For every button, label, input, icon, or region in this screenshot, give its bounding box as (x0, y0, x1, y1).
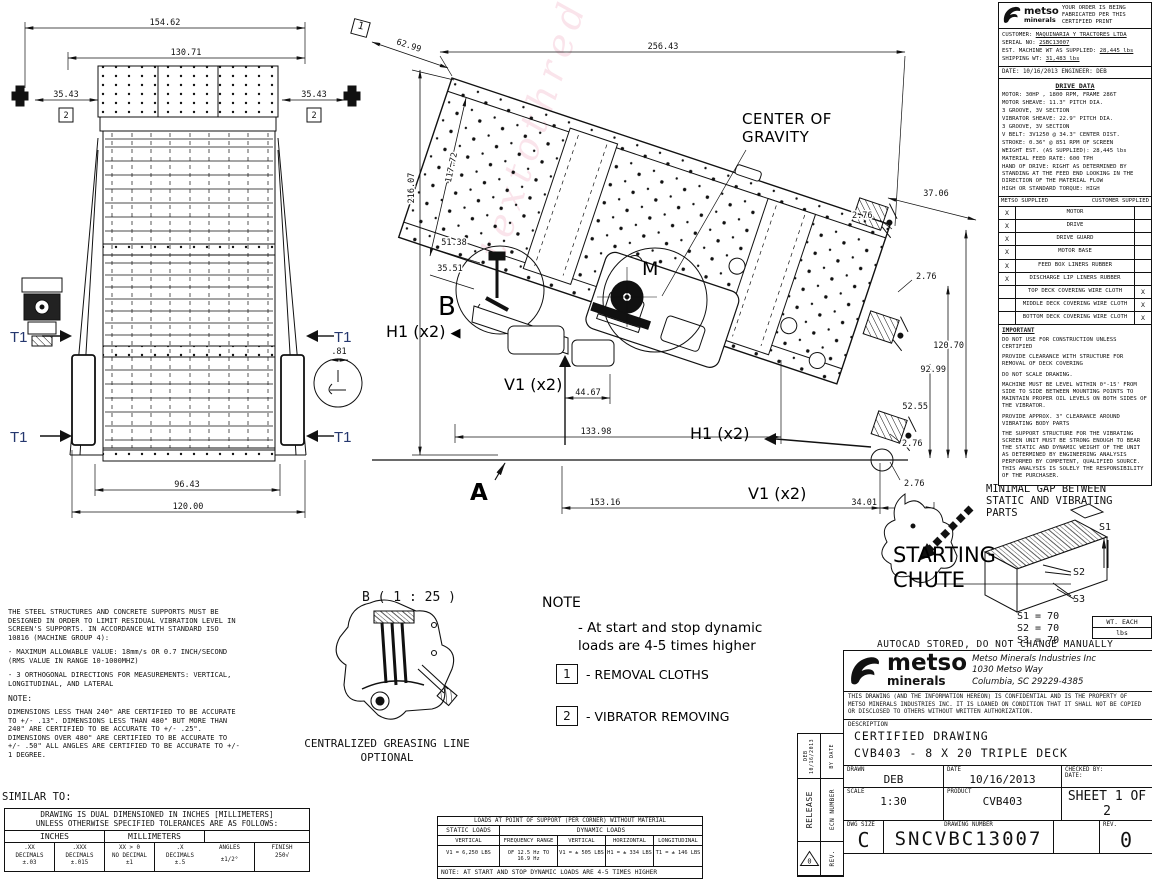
scale-value: 1:30 (847, 795, 940, 808)
ship-wt-value: 31,483 lbs (1046, 56, 1080, 62)
customer-cell (1135, 207, 1151, 219)
blank-cell (1054, 821, 1100, 853)
metso-cell: X (999, 233, 1015, 245)
tolerance-cell: .XX DECIMALS ±.03 (5, 843, 55, 871)
item-cell: FEED BOX LINERS RUBBER (1015, 260, 1135, 272)
important-paragraph: THE SUPPORT STRUCTURE FOR THE VIBRATING … (1002, 431, 1148, 480)
ship-wt-label: SHIPPING WT: (1002, 56, 1042, 62)
scale-row: SCALE 1:30 PRODUCT CVB403 SHEET 1 OF 2 (844, 788, 1152, 821)
logo-subtext: minerals (1024, 16, 1059, 24)
table-row: X DRIVE (999, 220, 1151, 233)
wt-each-label: WT. EACH (1093, 617, 1151, 627)
item-cell: MOTOR BASE (1015, 246, 1135, 258)
customer-cell: X (1135, 312, 1151, 324)
customer-cell: X (1135, 299, 1151, 311)
loads-value-cell: OF 12.5 Hz TO 16.9 Hz (500, 846, 558, 866)
metso-cell: X (999, 246, 1015, 258)
table-row: X FEED BOX LINERS RUBBER (999, 260, 1151, 273)
tol-line2: DECIMALS (5, 853, 54, 861)
drive-data-line: 3 GROOVE, 3V SECTION (1002, 108, 1148, 115)
important-title: IMPORTANT (1002, 327, 1148, 335)
est-wt-value: 28,445 lbs (1100, 48, 1134, 54)
detail-b-caption: CENTRALIZED GREASING LINE OPTIONAL (298, 737, 476, 766)
loads-value-cell: V1 = 6,250 LBS (438, 846, 500, 866)
loads-title: LOADS AT POINT OF SUPPORT (PER CORNER) W… (438, 817, 702, 826)
center-of-gravity-label: CENTER OF GRAVITY (742, 110, 854, 146)
important-paragraph: MACHINE MUST BE LEVEL WITHIN 0°-15' FROM… (1002, 382, 1148, 410)
tol-line3: ±.03 (5, 860, 54, 868)
tol-line3: ±.5 (155, 860, 205, 868)
t1-label: T1 (10, 429, 28, 446)
loads-header-cell: FREQUENCY RANGE (500, 836, 558, 845)
tolerance-cell: .X DECIMALS ±.5 (155, 843, 205, 871)
dim-detail: .81 (331, 347, 346, 357)
h1-load-label-left: H1 (x2) ◀ (386, 322, 461, 341)
rev-triangle-value: 0 (807, 858, 811, 866)
drive-data-line: STROKE: 0.36" @ 851 RPM OF SCREEN (1002, 140, 1148, 147)
customer-cell (1135, 233, 1151, 245)
loads-table: LOADS AT POINT OF SUPPORT (PER CORNER) W… (437, 816, 703, 879)
front-machine (12, 66, 362, 461)
important-paragraph: DO NOT USE FOR CONSTRUCTION UNLESS CERTI… (1002, 337, 1148, 351)
h1-load-label-right: H1 (x2) (690, 424, 749, 443)
drawn-row: DRAWN DEB DATE 10/16/2013 CHECKED BY: DA… (844, 766, 1152, 788)
customer-value: MAQUINARIA Y TRACTORES LTDA (1036, 32, 1127, 38)
release-label: RELEASE (805, 791, 814, 828)
est-wt-label: EST. MACHINE WT AS SUPPLIED: (1002, 48, 1096, 54)
tolerance-header: DRAWING IS DUAL DIMENSIONED IN INCHES [M… (5, 809, 309, 831)
customer-cell (1135, 246, 1151, 258)
similar-to-label: SIMILAR TO: (2, 791, 72, 803)
metso-cell: X (999, 273, 1015, 285)
structure-paragraph: THE STEEL STRUCTURES AND CONCRETE SUPPOR… (8, 608, 242, 642)
note-title: NOTE (542, 595, 581, 611)
dim-deck-width: 96.43 (174, 480, 200, 490)
drawn-value: DEB (847, 773, 940, 786)
angles-cell: ANGLES ±1/2° (205, 843, 255, 871)
loads-header-cell: HORIZONTAL (606, 836, 654, 845)
important-paragraph: PROVIDE CLEARANCE WITH STRUCTURE FOR REM… (1002, 354, 1148, 368)
dim-side-right: 35.43 (301, 90, 327, 100)
m-label: M (642, 258, 658, 280)
numbered-item: 2 - VIBRATOR REMOVING (556, 706, 729, 726)
important-paragraph: DO NOT SCALE DRAWING. (1002, 372, 1148, 379)
v1-load-label-right: V1 (x2) (748, 484, 806, 503)
h1-text: H1 (x2) (386, 322, 445, 341)
dim-feed-height: 216.07 (407, 173, 417, 204)
table-row: BOTTOM DECK COVERING WIRE CLOTH X (999, 312, 1151, 324)
customer-cell: X (1135, 286, 1151, 298)
s2-value: S2 = 70 (1017, 623, 1059, 634)
detail-b-drawing (322, 585, 487, 745)
finish-cell: FINISH 250√ (255, 843, 309, 871)
drive-data-line: MOTOR SHEAVE: 11.3" PITCH DIA. (1002, 100, 1148, 107)
note-body: - At start and stop dynamic loads are 4-… (578, 620, 790, 655)
loads-value-cell: V1 = ± 505 LBS (558, 846, 606, 866)
drive-data-line: 3 GROOVE, 3V SECTION (1002, 124, 1148, 131)
order-header: metso minerals YOUR ORDER IS BEING FABRI… (999, 3, 1151, 29)
tolerance-header-1: DRAWING IS DUAL DIMENSIONED IN INCHES [M… (5, 810, 309, 819)
rev-value: 0 (1103, 828, 1149, 852)
loads-note: NOTE: AT START AND STOP DYNAMIC LOADS AR… (438, 867, 702, 878)
metso-cell (999, 299, 1015, 311)
table-row: X MOTOR BASE (999, 246, 1151, 259)
dim-side-left: 35.43 (53, 90, 79, 100)
weight-each-box: WT. EACH lbs (1092, 616, 1152, 639)
table-row: X DRIVE GUARD (999, 233, 1151, 246)
t1-label: T1 (334, 329, 352, 346)
loads-header-cell: VERTICAL (438, 836, 500, 845)
dim-51: 51.38 (441, 238, 467, 248)
customer-label: CUSTOMER: (1002, 32, 1032, 38)
loads-value-cell: T1 = ± 146 LBS (654, 846, 702, 866)
serial-label: SERIAL NO: (1002, 40, 1036, 46)
important-section: IMPORTANT DO NOT USE FOR CONSTRUCTION UN… (999, 325, 1151, 485)
logo-text: metso (887, 654, 967, 674)
structure-notes: THE STEEL STRUCTURES AND CONCRETE SUPPOR… (8, 608, 242, 759)
drive-data-section: DRIVE DATA MOTOR: 30HP , 1800 RPM, FRAME… (999, 79, 1151, 197)
address-line-2: Columbia, SC 29229-4385 (972, 677, 1096, 688)
callout-2-right: 2 (311, 111, 316, 121)
confidentiality-note: THIS DRAWING (AND THE INFORMATION HEREON… (844, 692, 1152, 720)
description-label: DESCRIPTION (848, 721, 1148, 728)
dwg-size-value: C (847, 828, 880, 852)
wt-unit-label: lbs (1093, 627, 1151, 638)
item-number-box: 2 (556, 706, 578, 726)
company-header: metso minerals Metso Minerals Industries… (844, 651, 1152, 692)
item-cell: MIDDLE DECK COVERING WIRE CLOTH (1015, 299, 1135, 311)
tol-line1: .XXX (55, 845, 104, 853)
item-cell: TOP DECK COVERING WIRE CLOTH (1015, 286, 1135, 298)
dim-35: 35.51 (437, 264, 463, 274)
table-row: TOP DECK COVERING WIRE CLOTH X (999, 286, 1151, 299)
item-cell: MOTOR (1015, 207, 1135, 219)
dim-52: 52.55 (902, 402, 928, 412)
loads-groups: STATIC LOADS DYNAMIC LOADS (438, 826, 702, 836)
ecn-number-label: ECN NUMBER (829, 789, 836, 830)
drive-data-line: MATERIAL FEED RATE: 600 TPH (1002, 156, 1148, 163)
info-column: metso minerals YOUR ORDER IS BEING FABRI… (998, 2, 1152, 486)
item-number-box: 1 (556, 664, 578, 684)
serial-value: 2SBC13007 (1039, 40, 1069, 46)
description-line-1: CERTIFIED DRAWING (848, 728, 1148, 745)
dim-276-a: 2.76 (852, 211, 872, 221)
drive-data-line: MOTOR: 30HP , 1800 RPM, FRAME 286T (1002, 92, 1148, 99)
metso-swoosh-icon (1002, 5, 1022, 25)
item-cell: DISCHARGE LIP LINERS RUBBER (1015, 273, 1135, 285)
item-cell: DRIVE (1015, 220, 1135, 232)
customer-cell (1135, 220, 1151, 232)
description-line-2: CVB403 - 8 X 20 TRIPLE DECK (848, 745, 1148, 762)
tolerance-cell: XX > 0 NO DECIMAL ±1 (105, 843, 155, 871)
accuracy-note-body: DIMENSIONS LESS THAN 240" ARE CERTIFIED … (8, 708, 242, 759)
structure-paragraph: - MAXIMUM ALLOWABLE VALUE: 18mm/s OR 0.7… (8, 648, 242, 665)
dim-34: 34.01 (851, 498, 877, 508)
tol-line1: .X (155, 845, 205, 853)
rev-triangle: 0 (798, 842, 821, 876)
section-b-label: B (438, 292, 456, 322)
t1-label: T1 (10, 329, 28, 346)
starting-chute-label: STARTING CHUTE (893, 543, 1023, 593)
tolerance-cells: .XX DECIMALS ±.03 .XXX DECIMALS ±.015 XX… (5, 843, 309, 871)
dynamic-loads-header: DYNAMIC LOADS (500, 826, 702, 835)
dim-feed: 62.99 (395, 37, 422, 55)
front-view-drawing: 154.62 130.71 35.43 35.43 2 2 96.43 120.… (8, 18, 364, 530)
tol-line3: ±.015 (55, 860, 104, 868)
drive-data-line: WEIGHT EST. (AS SUPPLIED): 28,445 lbs (1002, 148, 1148, 155)
loads-header-cell: VERTICAL (558, 836, 606, 845)
release-by-date: DEB 10/16/2013 (803, 734, 815, 778)
finish-label: FINISH (255, 845, 309, 853)
by-date-label: BY DATE (829, 744, 835, 769)
drive-data-lines: MOTOR: 30HP , 1800 RPM, FRAME 286TMOTOR … (1002, 92, 1148, 193)
supply-table-body: X MOTOR X DRIVE X DRIVE GUARD (999, 207, 1151, 324)
s3-label: S3 (1073, 594, 1085, 605)
angles-label: ANGLES (205, 845, 254, 853)
item-label: - REMOVAL CLOTHS (586, 667, 709, 682)
dim-base-width: 120.00 (173, 502, 204, 512)
item-cell: DRIVE GUARD (1015, 233, 1135, 245)
inches-label: INCHES (5, 831, 105, 842)
tolerance-cell: .XXX DECIMALS ±.015 (55, 843, 105, 871)
loads-header-cell: LONGITUDINAL (654, 836, 702, 845)
structure-paragraph: - 3 ORTHOGONAL DIRECTIONS FOR MEASUREMEN… (8, 671, 242, 688)
date-engineer-line: DATE: 10/16/2013 ENGINEER: DEB (999, 67, 1151, 79)
order-note: YOUR ORDER IS BEING FABRICATED PER THIS … (1062, 5, 1148, 26)
drive-data-line: HAND OF DRIVE: RIGHT AS DETERMINED BY ST… (1002, 164, 1148, 185)
tolerance-header-2: UNLESS OTHERWISE SPECIFIED TOLERANCES AR… (5, 819, 309, 828)
s1-label: S1 (1099, 522, 1111, 533)
customer-supplied-header: CUSTOMER SUPPLIED (1092, 198, 1149, 205)
tol-line1: .XX (5, 845, 54, 853)
metso-cell (999, 286, 1015, 298)
dim-37: 37.06 (923, 189, 949, 199)
metso-swoosh-icon (848, 654, 882, 688)
drawing-number-value: SNCVBC13007 (887, 828, 1050, 850)
tol-line2: DECIMALS (155, 853, 205, 861)
detail-b-title: B ( 1 : 25 ) (362, 590, 456, 605)
tol-line1: XX > 0 (105, 845, 154, 853)
title-block: metso minerals Metso Minerals Industries… (843, 650, 1152, 854)
checked-date-label: DATE: (1065, 773, 1149, 779)
h1-arrow-icon: ◀ (451, 326, 461, 341)
accuracy-note-title: NOTE: (8, 694, 242, 704)
tolerance-table: DRAWING IS DUAL DIMENSIONED IN INCHES [M… (4, 808, 310, 872)
millimeters-label: MILLIMETERS (105, 831, 205, 842)
metso-cell: X (999, 207, 1015, 219)
dim-overall-width: 154.62 (150, 18, 181, 28)
dim-92: 92.99 (920, 365, 946, 375)
logo-text: metso (1024, 7, 1059, 16)
tol-line3: ±1 (105, 860, 154, 868)
minimal-gap-note: MINIMAL GAP BETWEEN STATIC AND VIBRATING… (986, 483, 1144, 519)
callout-2-left: 2 (63, 111, 68, 121)
metso-cell: X (999, 260, 1015, 272)
date-value: 10/16/2013 (947, 773, 1058, 786)
loads-headers: VERTICALFREQUENCY RANGEVERTICALHORIZONTA… (438, 836, 702, 846)
angles-value: ±1/2° (205, 853, 254, 865)
s2-label: S2 (1073, 567, 1085, 578)
supply-table: METSO SUPPLIED CUSTOMER SUPPLIED X MOTOR… (999, 197, 1151, 325)
v1-load-label-left: V1 (x2) (504, 375, 562, 394)
customer-cell (1135, 273, 1151, 285)
numbered-items: 1 - REMOVAL CLOTHS 2 - VIBRATOR REMOVING (556, 664, 729, 726)
tol-line2: NO DECIMAL (105, 853, 154, 861)
item-cell: BOTTOM DECK COVERING WIRE CLOTH (1015, 312, 1135, 324)
caption-line-1: CENTRALIZED GREASING LINE (298, 737, 476, 751)
surface-finish-icon: √ (285, 853, 289, 859)
numbered-item: 1 - REMOVAL CLOTHS (556, 664, 729, 684)
drawing-sheet: textothreduce (0, 0, 1152, 879)
dim-120: 120.70 (933, 341, 964, 351)
t1-label: T1 (334, 429, 352, 446)
section-a-label: A (470, 480, 488, 506)
revision-sidebar: DEB 10/16/2013 BY DATE RELEASE ECN NUMBE… (797, 733, 844, 877)
s1-value: S1 = 70 (1017, 611, 1059, 622)
order-fields: CUSTOMER: MAQUINARIA Y TRACTORES LTDA SE… (999, 29, 1151, 67)
metso-cell (999, 312, 1015, 324)
table-row: MIDDLE DECK COVERING WIRE CLOTH X (999, 299, 1151, 312)
item-label: - VIBRATOR REMOVING (586, 709, 729, 724)
tolerance-subheader: INCHES MILLIMETERS (5, 831, 309, 843)
finish-value: 250 (275, 853, 285, 859)
sheet-number: SHEET 1 OF 2 (1065, 789, 1149, 819)
dim-276-b: 2.76 (916, 272, 936, 282)
caption-line-2: OPTIONAL (298, 751, 476, 765)
dim-44: 44.67 (575, 388, 601, 398)
dim-length: 256.43 (648, 42, 679, 52)
dim-inner-width: 130.71 (171, 48, 202, 58)
metso-supplied-header: METSO SUPPLIED (1001, 198, 1048, 205)
metso-logo: metso minerals (1002, 5, 1059, 25)
drive-data-line: HIGH OR STANDARD TORQUE: HIGH (1002, 186, 1148, 193)
table-row: X DISCHARGE LIP LINERS RUBBER (999, 273, 1151, 286)
drive-data-line: VIBRATOR SHEAVE: 22.9" PITCH DIA. (1002, 116, 1148, 123)
drive-data-line: V BELT: 3V1250 @ 34.3" CENTER DIST. (1002, 132, 1148, 139)
rev-side-label: REV. (829, 850, 836, 866)
drive-data-title: DRIVE DATA (1002, 82, 1148, 90)
loads-values: V1 = 6,250 LBSOF 12.5 Hz TO 16.9 HzV1 = … (438, 846, 702, 867)
important-paragraphs: DO NOT USE FOR CONSTRUCTION UNLESS CERTI… (1002, 337, 1148, 480)
autocad-note: AUTOCAD STORED, DO NOT CHANGE MANUALLY (877, 639, 1113, 650)
drawing-number-row: DWG SIZE C DRAWING NUMBER SNCVBC13007 RE… (844, 821, 1152, 853)
customer-cell (1135, 260, 1151, 272)
structure-paragraphs: THE STEEL STRUCTURES AND CONCRETE SUPPOR… (8, 608, 242, 688)
company-address: Metso Minerals Industries Inc 1030 Metso… (972, 654, 1096, 687)
loads-value-cell: H1 = ± 334 LBS (606, 846, 654, 866)
dim-153: 153.16 (590, 498, 621, 508)
dim-133: 133.98 (581, 427, 612, 437)
dim-276-c: 2.76 (902, 439, 922, 449)
product-value: CVB403 (947, 795, 1058, 808)
description-section: DESCRIPTION CERTIFIED DRAWING CVB403 - 8… (844, 720, 1152, 767)
static-loads-header: STATIC LOADS (438, 826, 500, 835)
company-name: Metso Minerals Industries Inc (972, 654, 1096, 665)
rev-triangle-icon: 0 (799, 850, 820, 867)
address-line-1: 1030 Metso Way (972, 665, 1096, 676)
blank-cell (205, 831, 309, 842)
important-paragraph: PROVIDE APPROX. 3" CLEARANCE AROUND VIBR… (1002, 414, 1148, 428)
tol-line2: DECIMALS (55, 853, 104, 861)
metso-cell: X (999, 220, 1015, 232)
table-row: X MOTOR (999, 207, 1151, 220)
